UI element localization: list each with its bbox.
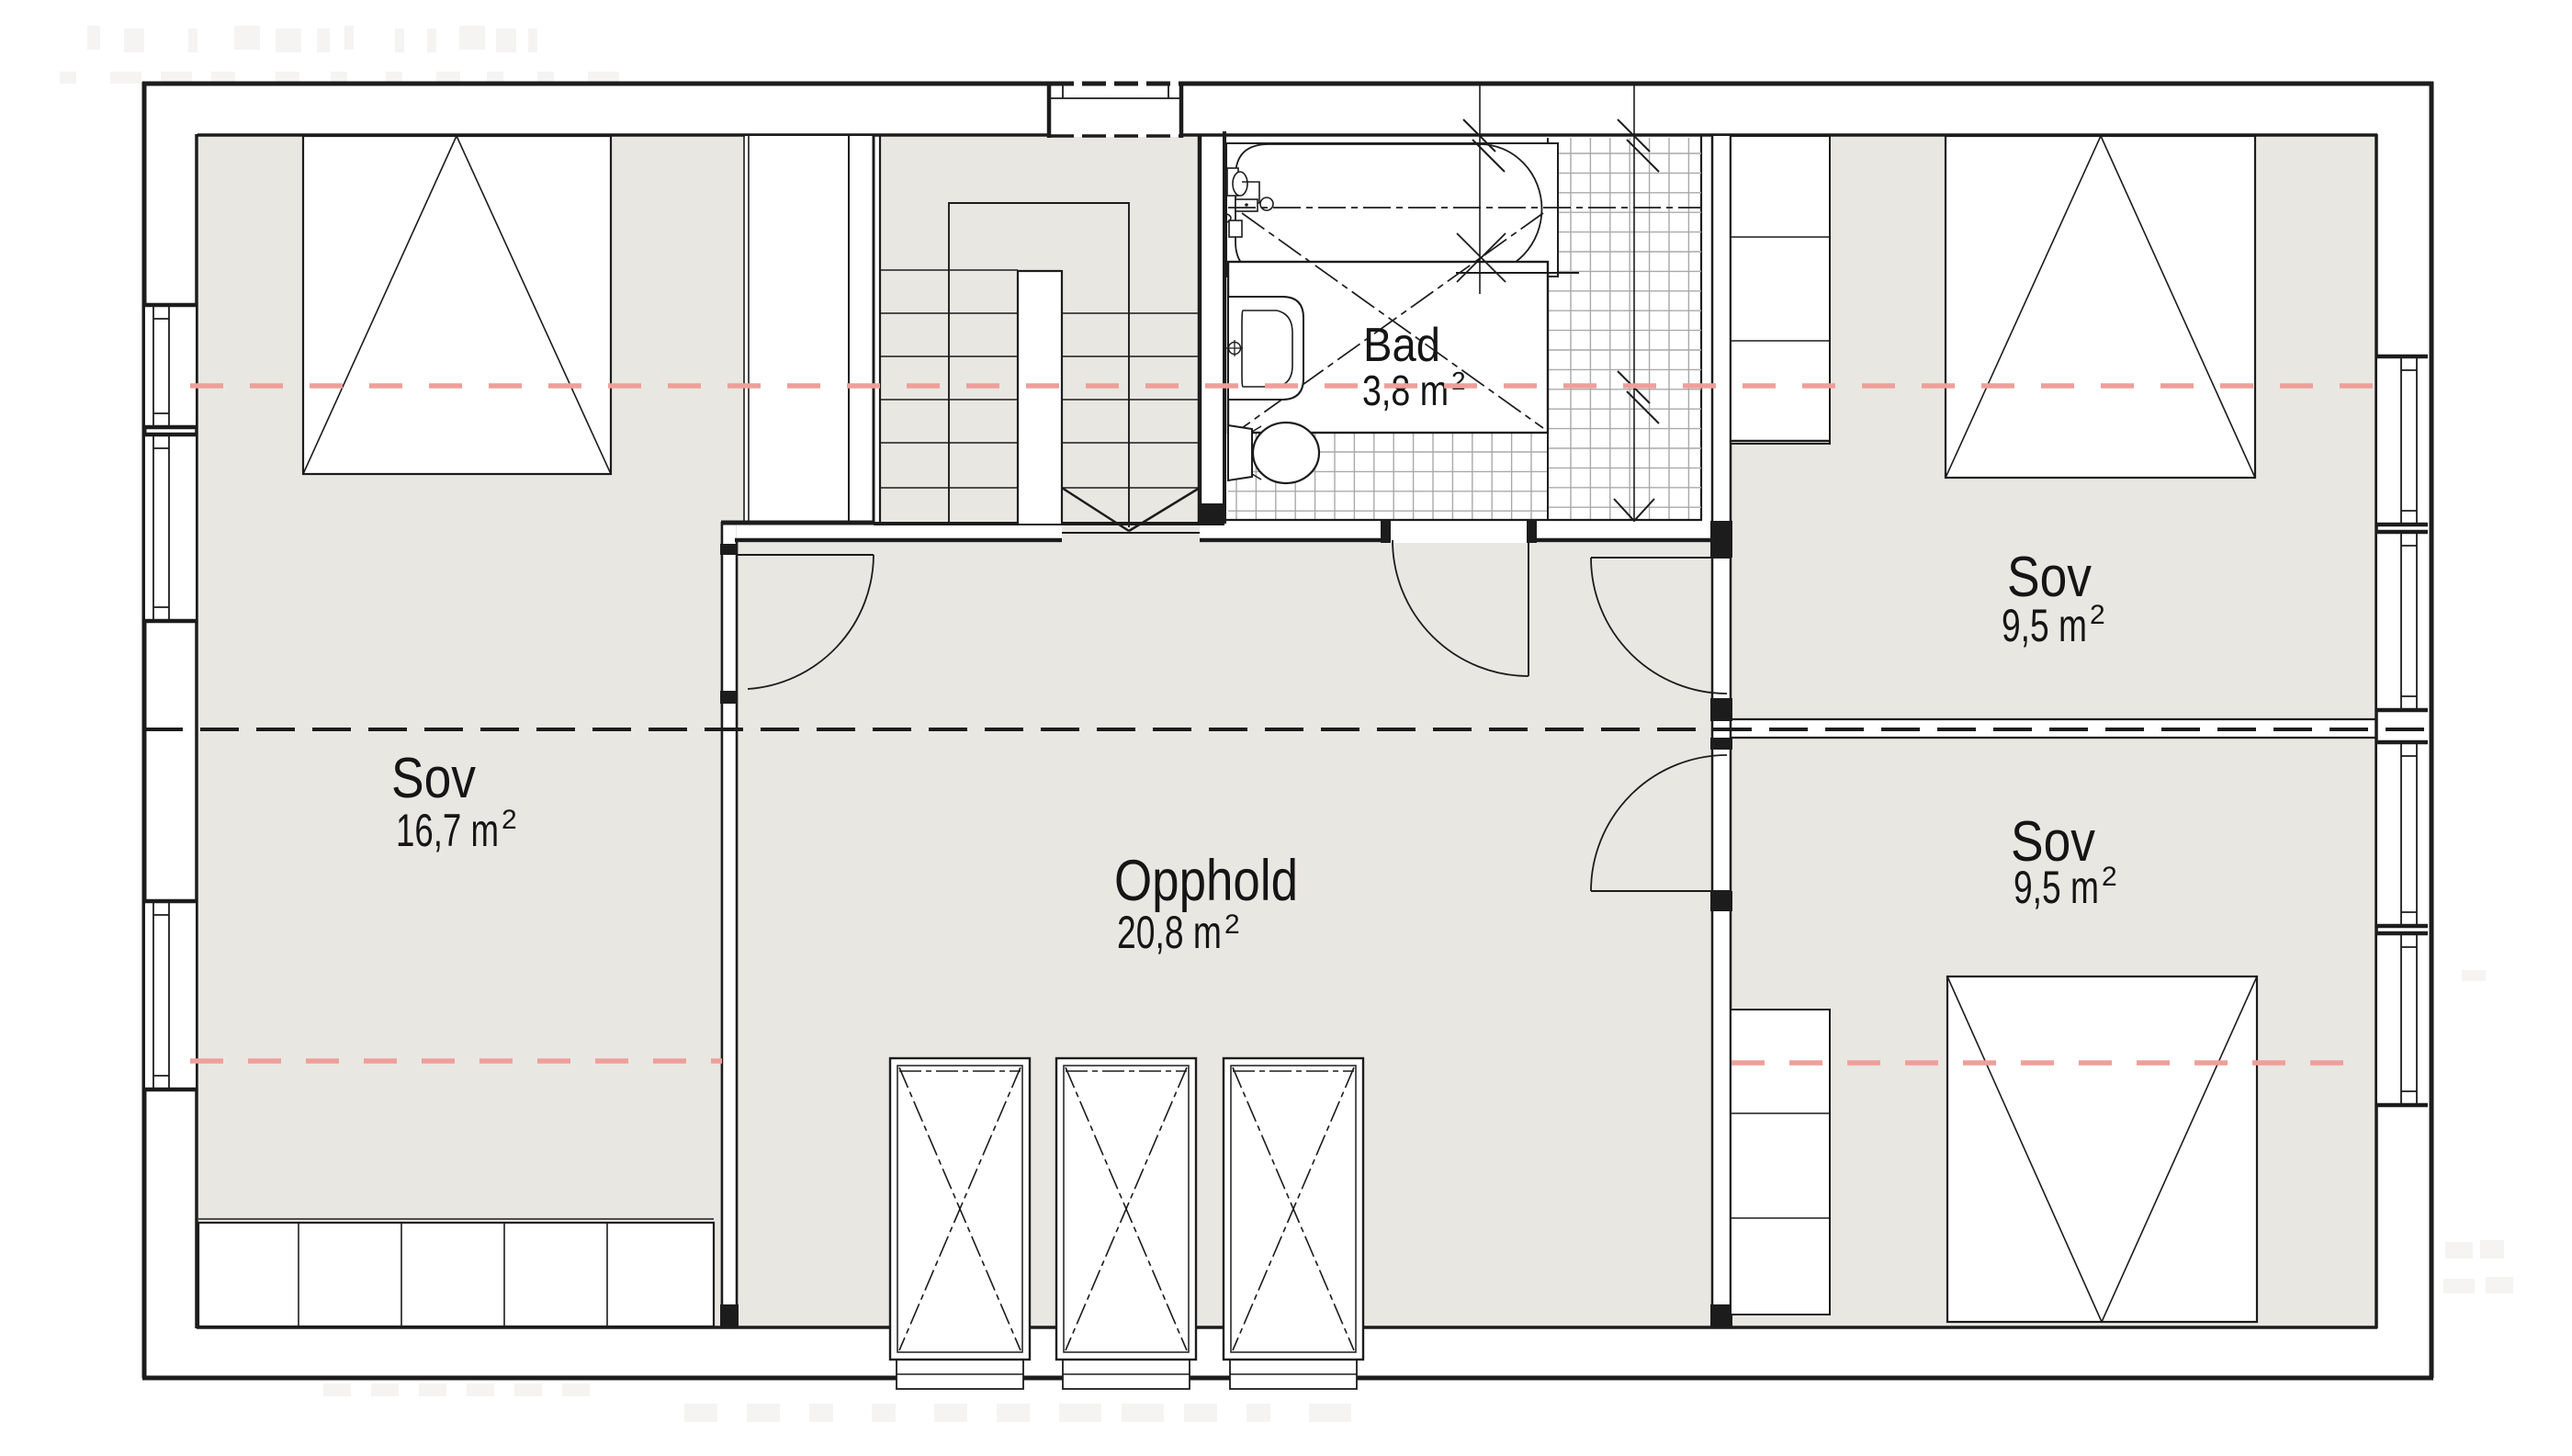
svg-text:9,5 m: 9,5 m <box>2014 862 2099 913</box>
svg-text:16,7 m: 16,7 m <box>396 805 499 856</box>
svg-text:3,8 m: 3,8 m <box>1362 367 1449 414</box>
svg-text:2: 2 <box>2090 600 2105 630</box>
svg-text:2: 2 <box>1451 367 1466 395</box>
svg-text:Sov: Sov <box>391 747 476 810</box>
svg-text:2: 2 <box>502 805 517 835</box>
svg-text:9,5 m: 9,5 m <box>2002 600 2087 651</box>
svg-text:20,8 m: 20,8 m <box>1117 907 1222 958</box>
svg-text:2: 2 <box>1224 909 1240 940</box>
svg-text:Bad: Bad <box>1363 319 1440 372</box>
svg-text:2: 2 <box>2102 862 2117 892</box>
svg-text:Opphold: Opphold <box>1114 849 1298 913</box>
